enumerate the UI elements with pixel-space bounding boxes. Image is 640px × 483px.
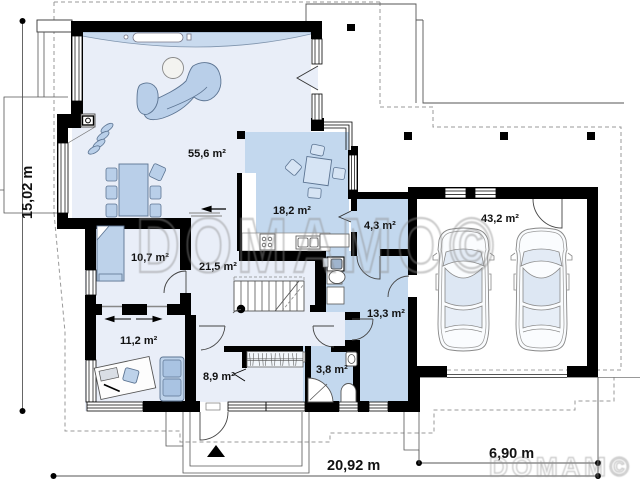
svg-text:20,92 m: 20,92 m — [327, 458, 380, 474]
svg-text:11,2 m²: 11,2 m² — [120, 335, 158, 347]
svg-text:DOMAMO©: DOMAMO© — [136, 202, 499, 289]
svg-text:DOMAM©: DOMAM© — [489, 452, 633, 482]
svg-text:13,3 m²: 13,3 m² — [367, 308, 405, 320]
svg-text:15,02 m: 15,02 m — [20, 166, 36, 219]
svg-text:8,9 m²: 8,9 m² — [203, 371, 235, 383]
svg-text:55,6 m²: 55,6 m² — [188, 148, 226, 160]
svg-text:3,8 m²: 3,8 m² — [316, 364, 348, 376]
